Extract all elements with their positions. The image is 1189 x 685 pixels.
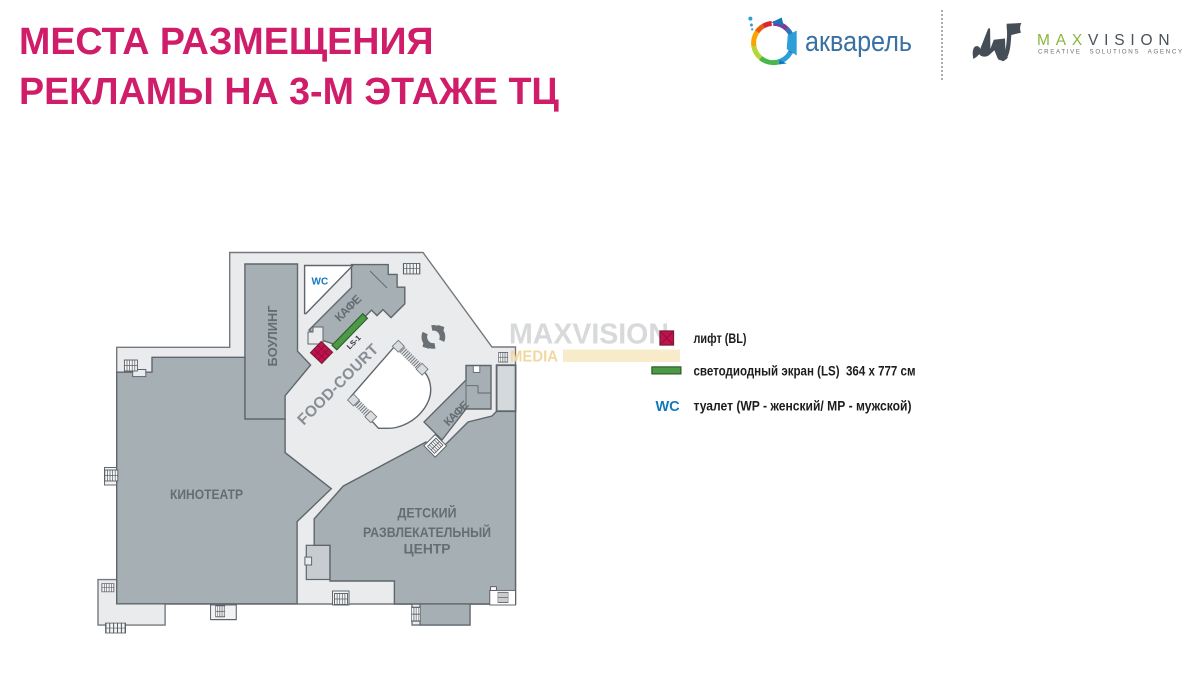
svg-text:MAXVISION: MAXVISION bbox=[509, 319, 669, 351]
svg-text:WC: WC bbox=[656, 399, 681, 415]
svg-text:лифт (BL): лифт (BL) bbox=[694, 330, 747, 346]
svg-text:КИНОТЕАТР: КИНОТЕАТР bbox=[170, 486, 243, 502]
svg-text:MEDIA: MEDIA bbox=[510, 349, 558, 366]
svg-text:ДЕТСКИЙ: ДЕТСКИЙ bbox=[398, 506, 457, 521]
svg-text:туалет (WP - женский/ МР - муж: туалет (WP - женский/ МР - мужской) bbox=[694, 398, 912, 414]
svg-text:РАЗВЛЕКАТЕЛЬНЫЙ: РАЗВЛЕКАТЕЛЬНЫЙ bbox=[363, 525, 491, 540]
svg-text:БОУЛИНГ: БОУЛИНГ bbox=[266, 306, 280, 367]
svg-text:светодиодный экран (LS) 364 x: светодиодный экран (LS) 364 x 777 см bbox=[694, 363, 916, 379]
svg-text:WC: WC bbox=[312, 277, 329, 288]
svg-text:ЦЕНТР: ЦЕНТР bbox=[404, 542, 451, 557]
